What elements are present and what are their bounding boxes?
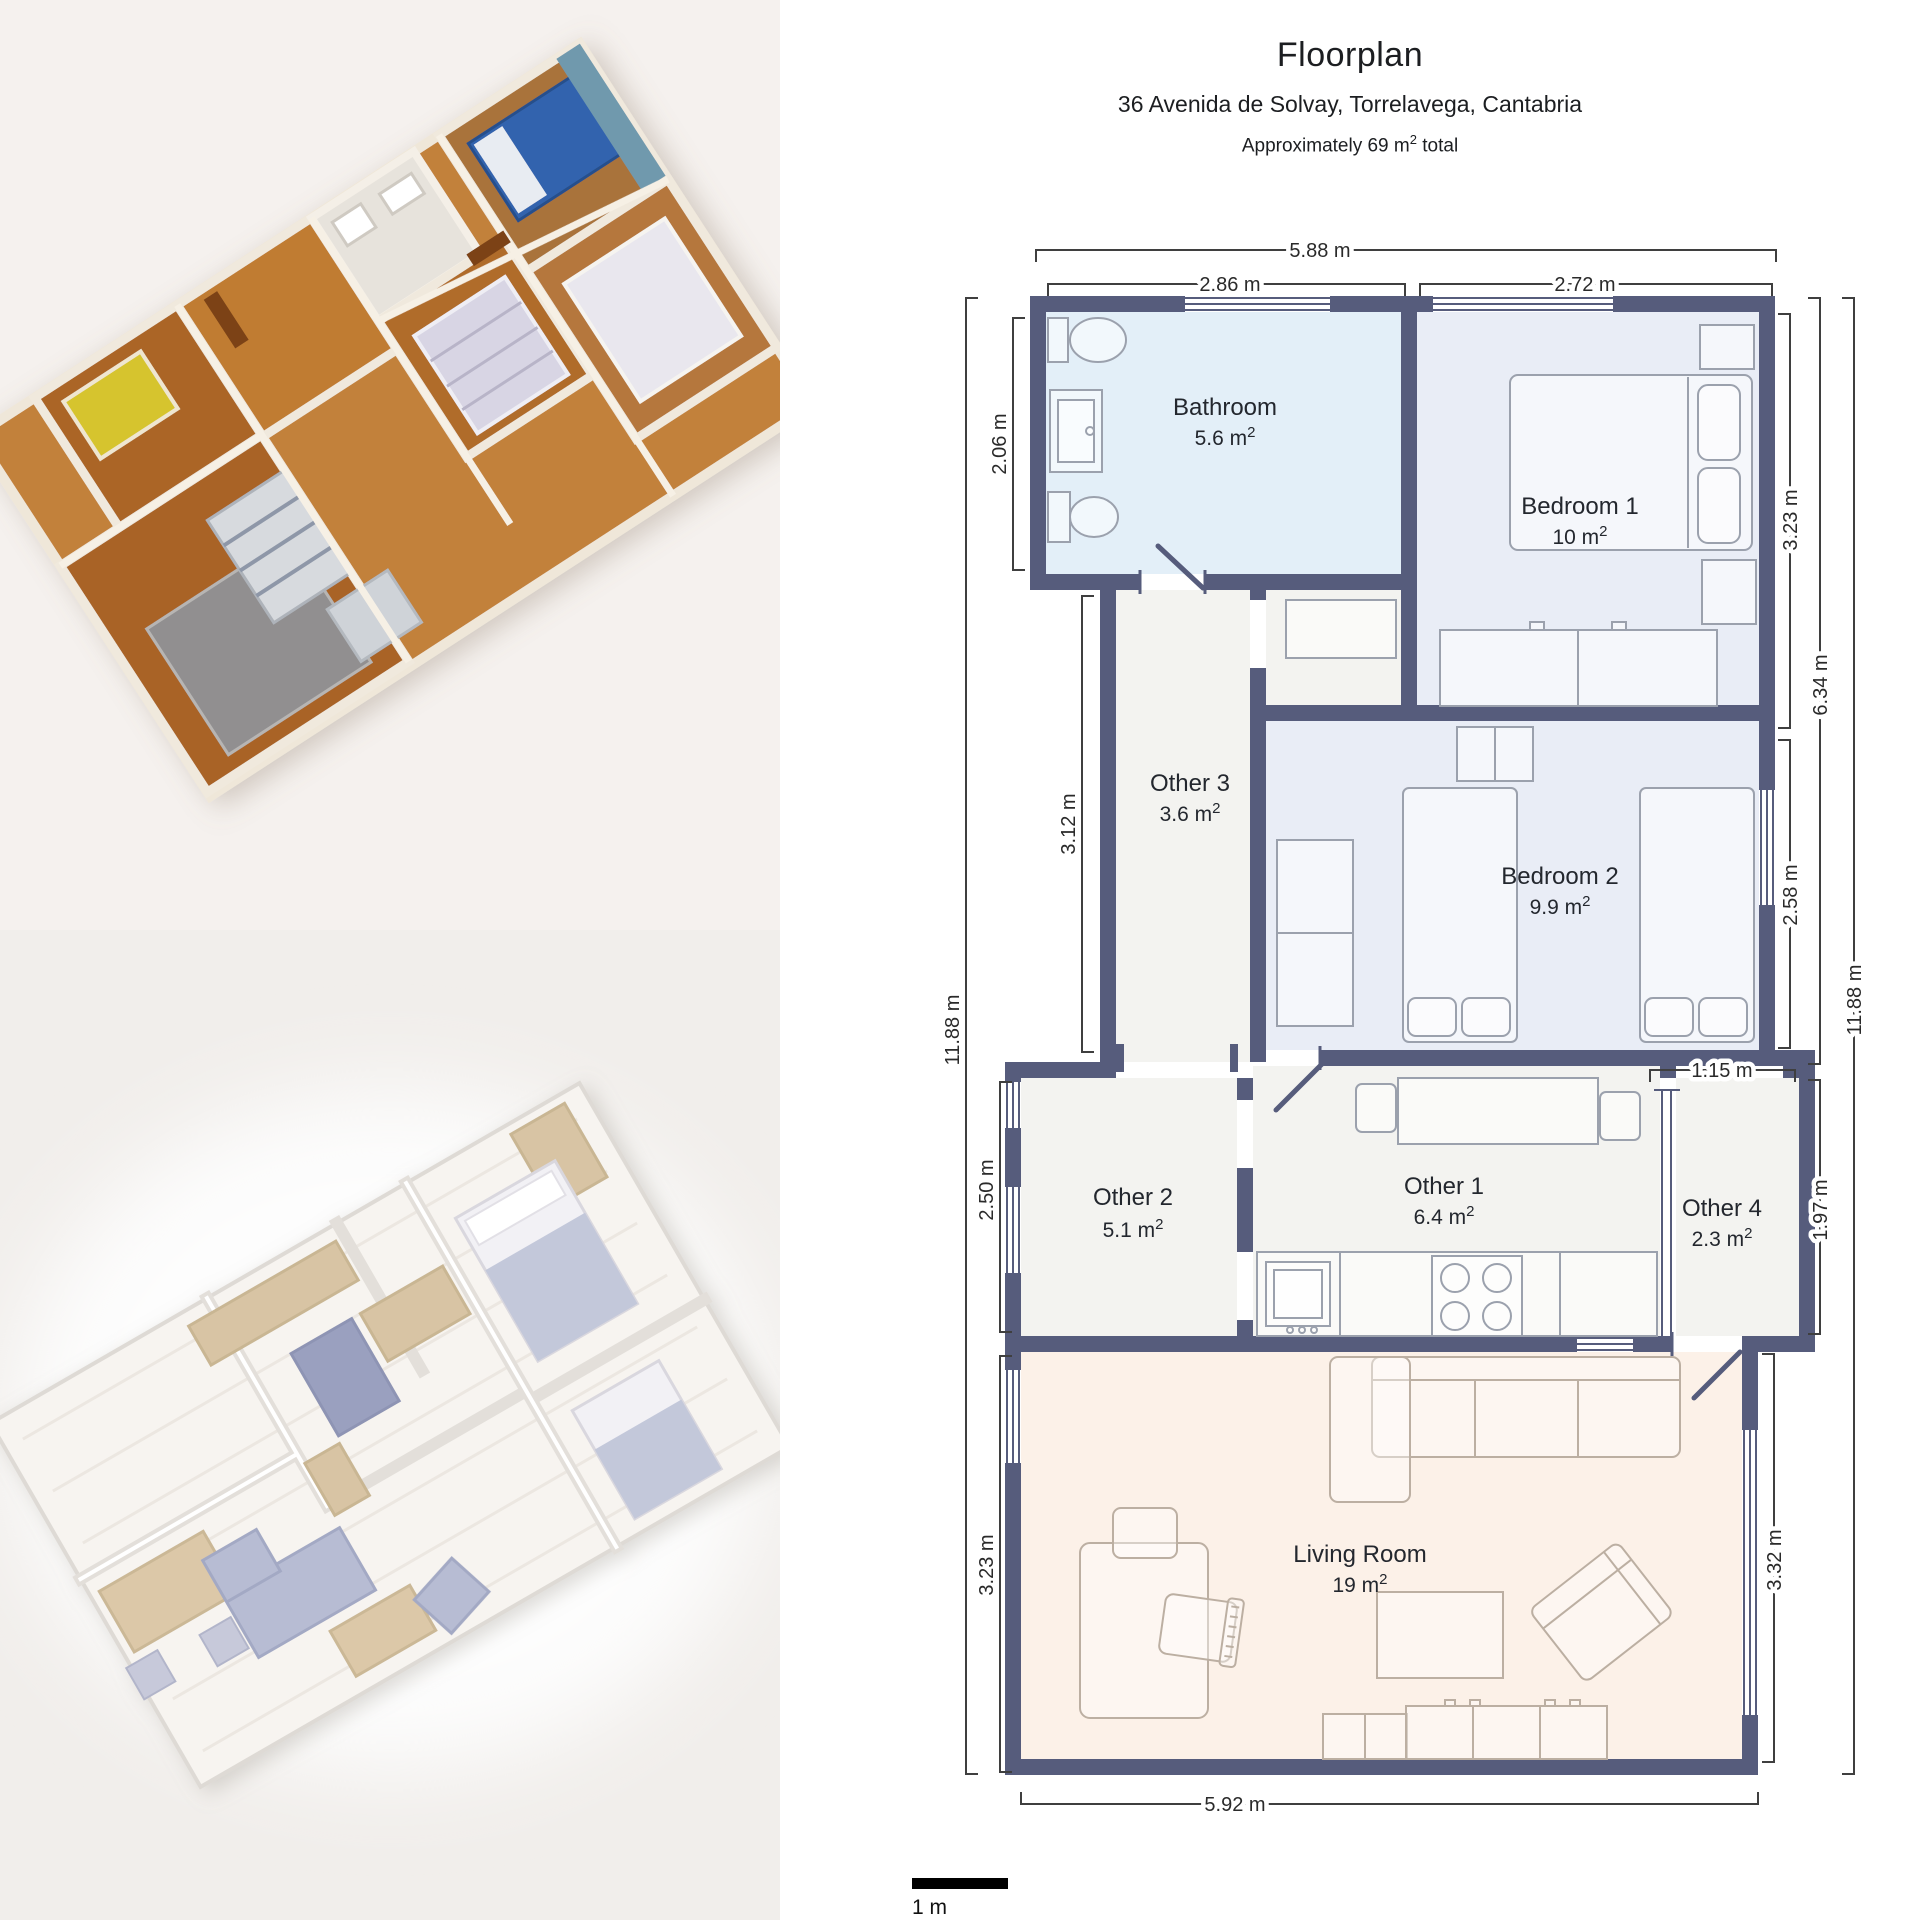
window-other2-left-b [1005,1187,1021,1273]
schematic-3d-image [0,930,780,1920]
pillow-icon [1408,998,1456,1036]
sofa-icon [1372,1357,1680,1457]
schematic-3d-panel [0,930,780,1920]
closet-cabinet-icon [1286,600,1396,658]
dim-label: 2.50 m [976,1159,998,1220]
sofa-chaise-icon [1330,1357,1410,1502]
bidet-icon [1048,492,1070,542]
nightstand-icon [1700,325,1754,369]
tv-cabinet-icon [1406,1706,1607,1759]
floorplan-panel: Floorplan 36 Avenida de Solvay, Torrelav… [780,0,1920,1920]
room-label: Other 2 [1093,1184,1173,1211]
room-area-label: 5.1 m2 [1103,1216,1164,1242]
dim-label: 2.06 m [989,413,1011,474]
room-area-label: 2.3 m2 [1692,1225,1753,1251]
room-area-label: 3.6 m2 [1160,800,1221,826]
dim-label: 6.34 m [1810,654,1832,715]
room-label: Other 1 [1404,1173,1484,1200]
dim-label: 11.88 m [1844,965,1866,1036]
dim-label: 1.15 m [1691,1060,1752,1082]
dim-label: 3.23 m [1780,489,1802,550]
room-label: Living Room [1293,1541,1426,1568]
dim-label: 1.97 m [1810,1179,1832,1240]
room-area-label: 6.4 m2 [1414,1203,1475,1229]
scale-bar-rule [912,1878,1008,1889]
photo-dollhouse-image [0,0,780,930]
dim-label: 3.32 m [1764,1529,1786,1590]
dim-label: 11.88 m [942,995,964,1066]
room-label: Other 3 [1150,770,1230,797]
window-bedroom2-right [1759,790,1775,905]
pillow-icon [1699,998,1747,1036]
scale-bar-label: 1 m [912,1896,947,1919]
window-bedroom1-top [1433,296,1613,312]
pillow-icon [1462,998,1510,1036]
desk-chair-icon [1113,1508,1177,1558]
room-label: Bathroom [1173,394,1277,421]
room-label: Bedroom 1 [1521,493,1638,520]
toilet-icon [1048,318,1068,362]
photo-dollhouse-panel [0,0,780,930]
dim-label: 2.72 m [1554,274,1615,296]
pillow-icon [1698,468,1740,543]
coffee-table-icon [1377,1592,1503,1678]
window-living-right [1742,1430,1758,1715]
floorplan-drawing: Bathroom 5.6 m2 Bedroom 1 10 m2 Other 3 … [780,0,1920,1920]
room-other-3 [1116,590,1250,1062]
dim-label: 5.88 m [1289,240,1350,262]
dim-label: 3.23 m [976,1534,998,1595]
room-label: Bedroom 2 [1501,863,1618,890]
window-bathroom-top [1185,296,1330,312]
chair-icon [1356,1084,1396,1132]
dim-label: 2.58 m [1780,864,1802,925]
window-other2-left-a [1005,1082,1021,1128]
room-label: Other 4 [1682,1195,1762,1222]
pass-through-kitchen [1577,1336,1633,1352]
dim-label: 5.92 m [1204,1794,1265,1816]
kitchen-table-icon [1398,1078,1598,1144]
dim-label: 3.12 m [1058,793,1080,854]
pillow-icon [1698,385,1740,460]
pillow-icon [1645,998,1693,1036]
cabinet-icon [1702,560,1756,624]
chair-icon [1600,1092,1640,1140]
window-living-left [1005,1370,1021,1463]
room-area-label: 5.6 m2 [1195,424,1256,450]
dim-label: 2.86 m [1199,274,1260,296]
room-area-label: 9.9 m2 [1530,893,1591,919]
scale-bar: 1 m [912,1878,1008,1919]
